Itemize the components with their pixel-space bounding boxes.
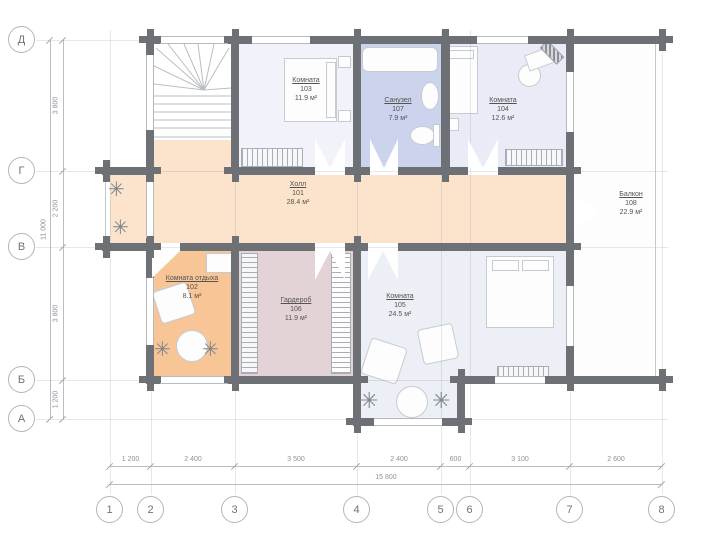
room-label-104: Комната 104 12.6 м² xyxy=(489,96,516,123)
grid-col-5: 5 xyxy=(427,496,454,523)
window-stairwell-left xyxy=(146,55,154,130)
room-name: Холл xyxy=(287,180,310,189)
table-105 xyxy=(396,386,428,418)
grid-row-d: Д xyxy=(8,26,35,53)
column-cross xyxy=(224,167,246,174)
column-cross xyxy=(450,376,472,383)
room-hall xyxy=(154,175,566,243)
grid-row-b: Б xyxy=(8,366,35,393)
nightstand xyxy=(338,110,351,122)
room-label-106: Гардероб 106 11.9 м² xyxy=(281,296,312,323)
wardrobe-106-left xyxy=(241,253,258,374)
column-cross xyxy=(95,243,117,250)
grid-col-1: 1 xyxy=(96,496,123,523)
room-name: Балкон xyxy=(619,190,642,199)
room-name: Комната xyxy=(489,96,516,105)
column-cross xyxy=(346,243,368,250)
hall-wall-top-3 xyxy=(398,167,468,175)
room-name: Комната отдыха xyxy=(166,274,219,283)
hall-wall-bottom-3 xyxy=(398,243,574,251)
cabinet-102 xyxy=(206,253,233,273)
room-label-107: Санузел 107 7.9 м² xyxy=(384,96,411,123)
room-number: 101 xyxy=(287,189,310,198)
dim-bottom-5: 3 100 xyxy=(470,456,570,463)
room-label-102: Комната отдыха 102 8.1 м² xyxy=(166,274,219,301)
balcony-rail-line xyxy=(655,44,656,376)
room-label-101: Холл 101 28.4 м² xyxy=(287,180,310,207)
grid-row-a: А xyxy=(8,405,35,432)
column-cross xyxy=(434,36,456,43)
column-cross xyxy=(139,243,161,250)
column-cross xyxy=(651,36,673,43)
room-area: 22.9 м² xyxy=(619,208,642,217)
window-102-left xyxy=(146,278,154,345)
column-cross xyxy=(95,167,117,174)
dim-bottom-4: 600 xyxy=(441,456,470,463)
column-cross xyxy=(346,167,368,174)
column-cross xyxy=(346,36,368,43)
plant-icon: ✳ xyxy=(154,340,171,360)
room-number: 104 xyxy=(489,105,516,114)
room-name: Комната xyxy=(292,76,319,85)
column-cross xyxy=(559,36,581,43)
column-cross xyxy=(139,36,161,43)
dimension-line-bottom-total xyxy=(110,484,662,485)
grid-col-8: 8 xyxy=(648,496,675,523)
room-label-105: Комната 105 24.5 м² xyxy=(386,292,413,319)
grid-col-4: 4 xyxy=(343,496,370,523)
plant-icon: ✳ xyxy=(202,340,219,360)
balcony-wall-top xyxy=(574,36,662,44)
room-area: 12.6 м² xyxy=(489,114,516,123)
column-cross xyxy=(559,243,581,250)
grid-col-3: 3 xyxy=(221,496,248,523)
floor-plan-canvas: ✳ ✳ ✳ ✳ ✳ ✳ Комната 103 11.9 м² Санузел … xyxy=(0,0,715,535)
room-number: 108 xyxy=(619,199,642,208)
grid-row-v: В xyxy=(8,233,35,260)
bathtub-icon xyxy=(362,47,438,72)
dim-left-total: 11 000 xyxy=(40,210,49,250)
grid-col-2: 2 xyxy=(137,496,164,523)
toilet-tank xyxy=(433,124,440,147)
wardrobe-103 xyxy=(241,148,303,167)
wall-stairs-103 xyxy=(231,44,239,167)
column-cross xyxy=(224,36,246,43)
toilet-icon xyxy=(410,126,435,145)
bed-103-pillows xyxy=(326,62,336,118)
room-name: Гардероб xyxy=(281,296,312,305)
room-area: 7.9 м² xyxy=(384,114,411,123)
nightstand xyxy=(338,56,351,68)
window-105-bottom xyxy=(495,376,545,384)
grid-row-g: Г xyxy=(8,157,35,184)
axis-line-6 xyxy=(470,30,471,495)
plant-icon: ✳ xyxy=(108,180,125,200)
dim-bottom-0: 1 200 xyxy=(110,456,151,463)
dimension-line-left xyxy=(63,40,64,419)
window-104-top xyxy=(477,36,528,44)
room-number: 105 xyxy=(386,301,413,310)
dim-bottom-2: 3 500 xyxy=(235,456,357,463)
wall-107-104 xyxy=(441,44,450,167)
window-stairwell-top xyxy=(160,36,228,44)
dim-bottom-6: 2 600 xyxy=(570,456,662,463)
porch-rail-line xyxy=(105,175,106,243)
sink-icon xyxy=(421,82,439,110)
dim-left-2: 3 800 xyxy=(52,294,61,334)
room-area: 28.4 м² xyxy=(287,198,310,207)
column-cross xyxy=(139,167,161,174)
wall-106-105 xyxy=(353,251,361,376)
dimension-line-bottom xyxy=(110,466,662,467)
hall-wall-top-1 xyxy=(235,167,315,175)
column-cross xyxy=(651,376,673,383)
dim-bottom-1: 2 400 xyxy=(151,456,235,463)
column-cross xyxy=(346,376,368,383)
room-number: 102 xyxy=(166,283,219,292)
plant-icon: ✳ xyxy=(360,390,378,412)
room-area: 11.9 м² xyxy=(292,94,319,103)
chair-105 xyxy=(417,323,460,366)
dim-bottom-total: 15 800 xyxy=(110,474,662,481)
dim-bottom-3: 2 400 xyxy=(357,456,441,463)
room-area: 11.9 м² xyxy=(281,314,312,323)
room-number: 103 xyxy=(292,85,319,94)
axis-line-1 xyxy=(110,30,111,495)
room-name: Комната xyxy=(386,292,413,301)
room-number: 107 xyxy=(384,105,411,114)
column-cross xyxy=(559,376,581,383)
dim-left-3: 1 200 xyxy=(52,380,61,420)
wall-103-107 xyxy=(353,44,361,167)
dresser-104 xyxy=(505,149,563,166)
column-cross xyxy=(450,418,472,425)
dim-left-1: 2 200 xyxy=(52,189,61,229)
column-cross xyxy=(139,376,161,383)
window-alcove-bottom xyxy=(374,418,442,426)
column-cross xyxy=(434,167,456,174)
door-porch-left xyxy=(146,182,154,238)
room-hall-stair-extension xyxy=(154,140,231,175)
hall-wall-bottom-1 xyxy=(180,243,315,251)
window-105-right xyxy=(566,286,574,346)
column-cross xyxy=(224,243,246,250)
plant-icon: ✳ xyxy=(432,390,450,412)
window-102-bottom xyxy=(160,376,228,384)
room-label-103: Комната 103 11.9 м² xyxy=(292,76,319,103)
plant-icon: ✳ xyxy=(112,218,129,238)
room-label-108: Балкон 108 22.9 м² xyxy=(619,190,642,217)
room-number: 106 xyxy=(281,305,312,314)
window-104-right xyxy=(566,72,574,132)
dim-left-0: 3 800 xyxy=(52,86,61,126)
grid-col-7: 7 xyxy=(556,496,583,523)
room-area: 8.1 м² xyxy=(166,292,219,301)
window-103-top xyxy=(252,36,310,44)
column-cross xyxy=(346,418,368,425)
axis-line-8 xyxy=(662,30,663,495)
column-cross xyxy=(224,376,246,383)
bed-105-pillow xyxy=(492,260,519,271)
staircase xyxy=(154,44,231,140)
bed-105-pillow xyxy=(522,260,549,271)
column-cross xyxy=(559,167,581,174)
balcony-wall-bottom xyxy=(574,376,662,384)
room-area: 24.5 м² xyxy=(386,310,413,319)
grid-col-6: 6 xyxy=(456,496,483,523)
wall-102-106 xyxy=(231,251,239,376)
room-name: Санузел xyxy=(384,96,411,105)
